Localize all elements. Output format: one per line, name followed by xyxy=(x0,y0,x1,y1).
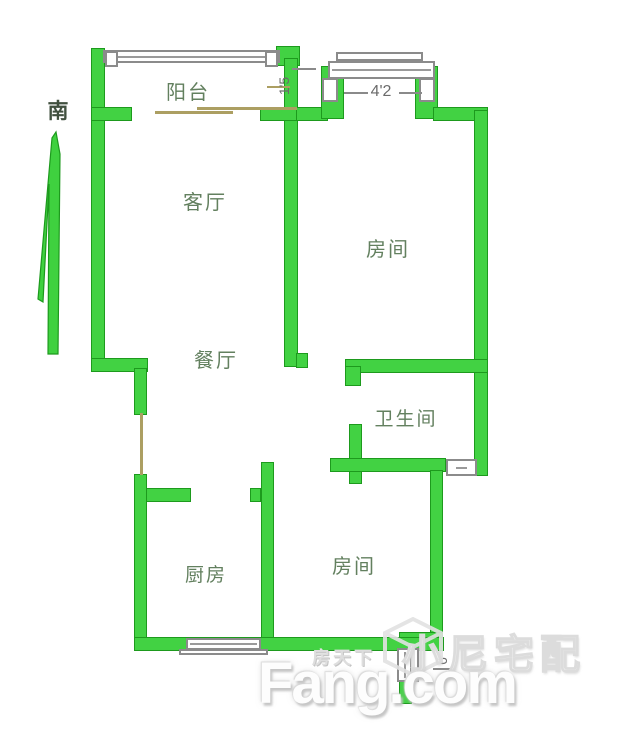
bedroom-top-window-lip xyxy=(336,52,423,61)
room-label-living: 客厅 xyxy=(164,186,246,215)
bedroom-top-window xyxy=(328,61,435,79)
wall-dining-step-v xyxy=(134,368,147,415)
wall-right-outer xyxy=(474,110,488,476)
wall-bedroom-bottom-right xyxy=(430,470,443,642)
south-label: 南 xyxy=(40,95,76,125)
wall-bathroom-left xyxy=(349,424,362,484)
wall-hall-stub xyxy=(345,366,361,386)
dimension-line-entry xyxy=(433,668,451,670)
dining-opening-line xyxy=(140,413,143,475)
bedroom-top-window-jamb-left xyxy=(322,78,338,102)
wall-left-outer xyxy=(91,48,105,372)
wall-divider-foot xyxy=(296,353,308,368)
dimension-balcony-side: 1'5 xyxy=(266,68,302,104)
dimension-top-window: 4'2 xyxy=(363,83,399,101)
dimension-line-window-right xyxy=(399,92,422,94)
wall-kitchen-divider xyxy=(261,462,274,651)
room-label-bathroom: 卫生间 xyxy=(366,404,446,431)
watermark-brand: Fang.com xyxy=(258,650,516,717)
bathroom-window xyxy=(446,459,477,476)
balcony-sliding-door-line-2 xyxy=(197,107,297,110)
balcony-window-cap-left xyxy=(105,51,118,67)
room-label-bedroom-top: 房间 xyxy=(351,233,425,262)
wall-bathroom-bottom xyxy=(330,458,446,472)
room-label-dining: 餐厅 xyxy=(177,344,255,373)
room-label-balcony: 阳台 xyxy=(150,76,226,105)
wall-hall xyxy=(345,359,488,373)
floor-plan: 4'2 1'5 6 南 阳台 客厅 房间 餐厅 卫生间 厨房 房间 房天下 小尼… xyxy=(0,0,640,735)
balcony-window-cap-right xyxy=(265,51,278,67)
room-label-kitchen: 厨房 xyxy=(168,560,244,587)
wall-balcony-shelf-left xyxy=(91,107,132,121)
balcony-sliding-door-line-1 xyxy=(155,111,233,114)
wall-kitchen-door-stub xyxy=(146,488,191,502)
wall-kitchen-divider-stub xyxy=(250,488,261,502)
bedroom-top-window-jamb-right xyxy=(419,78,435,102)
north-arrow-icon xyxy=(30,124,66,360)
balcony-window xyxy=(103,50,280,63)
room-label-bedroom-bottom: 房间 xyxy=(316,550,392,579)
kitchen-window-sill xyxy=(179,649,268,655)
wall-divider-living-bedroom xyxy=(284,58,298,367)
entry-door xyxy=(397,648,419,682)
